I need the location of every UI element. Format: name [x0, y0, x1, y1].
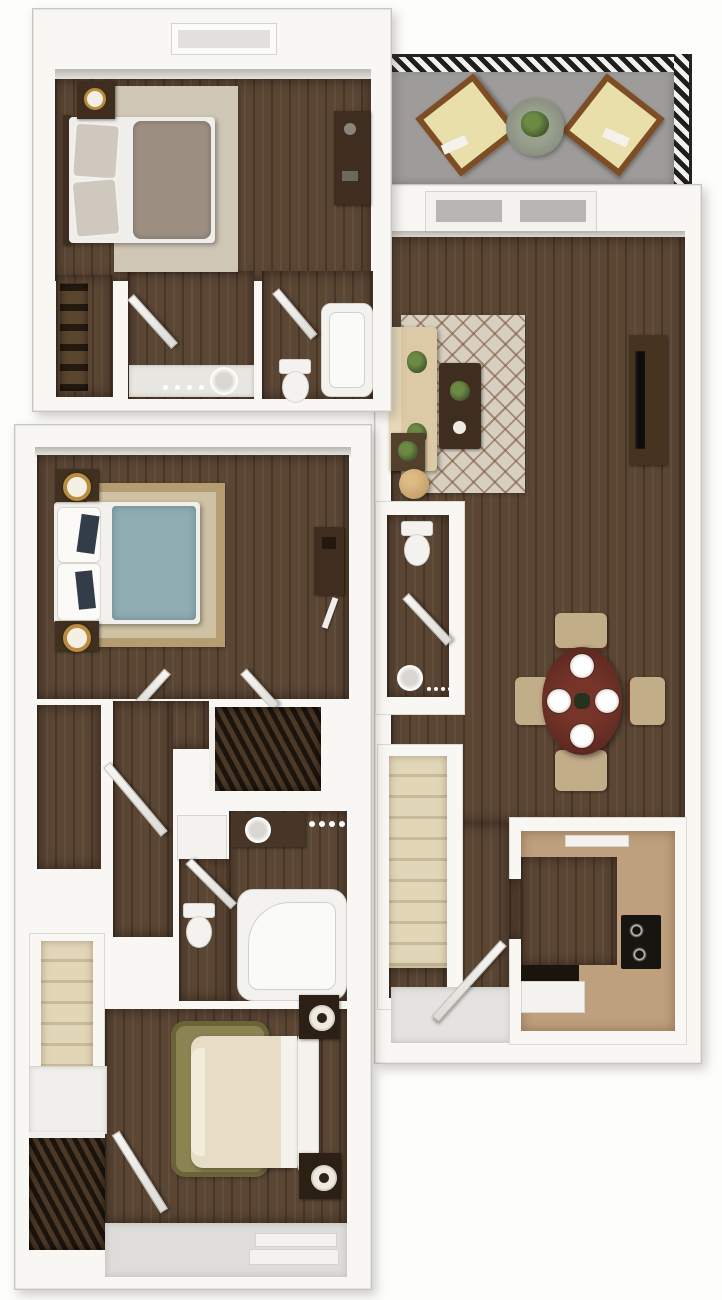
kitchen-doorway — [509, 879, 521, 939]
dining-area — [505, 605, 675, 805]
tub-basin — [248, 902, 336, 990]
linen-cabinet — [177, 815, 227, 861]
bed2-sheet-fold — [281, 1036, 297, 1168]
lower-level-unit — [14, 424, 372, 1290]
dresser-item — [344, 123, 356, 135]
toilet-bowl — [282, 371, 309, 403]
main-living-unit — [374, 184, 702, 1064]
table-centerpiece — [574, 693, 590, 709]
staircase-lower — [29, 933, 105, 1085]
coffee-table — [439, 363, 481, 449]
door-panel — [520, 200, 586, 222]
balcony-railing-top — [378, 54, 676, 72]
chair-pillow — [602, 128, 630, 148]
garden-tub — [237, 889, 347, 1001]
bath-sink — [245, 817, 271, 843]
front-door — [425, 191, 597, 233]
nightstand-lamp — [63, 473, 91, 501]
dishwasher — [521, 981, 585, 1013]
window-bay-step — [255, 1233, 337, 1247]
tub-basin — [329, 312, 365, 388]
place-setting — [570, 724, 594, 748]
door-sidelite — [436, 200, 502, 222]
staircase-main — [377, 744, 463, 1010]
range-hood-vent — [565, 835, 629, 847]
floor-plan-canvas — [0, 0, 722, 1300]
desk-item — [322, 537, 336, 549]
pillow — [71, 121, 121, 180]
hall-floor — [113, 701, 173, 937]
nightstand-lamp — [311, 1165, 337, 1191]
bathtub — [321, 303, 373, 397]
clock — [84, 88, 106, 110]
faucet-dot — [175, 385, 180, 390]
nightstand-lamp — [63, 624, 91, 652]
mirror-light — [309, 821, 315, 827]
media-console — [629, 335, 667, 465]
upper-suite-unit — [32, 8, 392, 412]
faucet-dot — [187, 385, 192, 390]
balcony-railing-right — [674, 54, 692, 188]
powder-room — [375, 501, 465, 715]
kitchen — [509, 817, 687, 1045]
faucet-dot — [427, 687, 431, 691]
place-setting — [547, 689, 571, 713]
side-table — [391, 433, 425, 471]
balcony — [378, 46, 692, 188]
kitchen-floor — [521, 857, 617, 965]
vanity-sink — [210, 367, 238, 395]
stairs — [389, 756, 447, 968]
bed2-duvet — [191, 1036, 291, 1168]
faucet-dot — [199, 385, 204, 390]
faucet-dot — [434, 687, 438, 691]
chair-pillow — [441, 135, 469, 155]
place-setting — [570, 654, 594, 678]
oven-front — [521, 965, 579, 981]
toilet-bowl — [404, 534, 430, 566]
mirror-light — [329, 821, 335, 827]
closet2-shelf — [29, 1066, 107, 1134]
duvet-fold — [191, 1048, 205, 1156]
faucet-dot — [448, 687, 452, 691]
closet2-clothes — [29, 1132, 105, 1250]
burner — [629, 923, 644, 938]
nightstand — [77, 81, 115, 119]
faucet-dot — [163, 385, 168, 390]
side-table-plant — [398, 441, 418, 461]
dresser-item — [342, 171, 358, 181]
sofa-pillow-plant — [407, 351, 427, 373]
patio-plant — [521, 111, 549, 137]
closet-shelf-edge — [29, 1132, 105, 1138]
coffee-table-plant — [450, 381, 470, 401]
nightstand-lamp — [309, 1005, 335, 1031]
mirror-light — [319, 821, 325, 827]
powder-sink — [397, 665, 423, 691]
tv-screen — [635, 351, 645, 449]
cooktop — [621, 915, 661, 969]
toilet-bowl — [186, 916, 212, 948]
ottoman — [399, 469, 429, 499]
walkin-closet-floor — [37, 705, 101, 869]
mirror-light — [339, 821, 345, 827]
window-bay-step — [249, 1249, 339, 1265]
hall-closet-clothes — [209, 707, 321, 791]
window-glass — [178, 30, 270, 48]
dining-chair-north — [555, 613, 607, 651]
stairs — [41, 941, 93, 1077]
bedroom-window — [171, 23, 277, 55]
dining-chair-east — [627, 677, 665, 725]
dresser — [334, 111, 370, 205]
pillow — [71, 177, 122, 239]
sheet-fold — [100, 506, 112, 620]
closet-shelving — [60, 283, 88, 391]
place-setting — [595, 689, 619, 713]
faucet-dot — [441, 687, 445, 691]
duvet — [133, 121, 211, 239]
closet-shelf-edge — [209, 707, 215, 791]
burner — [632, 947, 647, 962]
desk — [314, 527, 344, 595]
teal-duvet — [112, 506, 196, 620]
table-bowl — [453, 421, 466, 434]
